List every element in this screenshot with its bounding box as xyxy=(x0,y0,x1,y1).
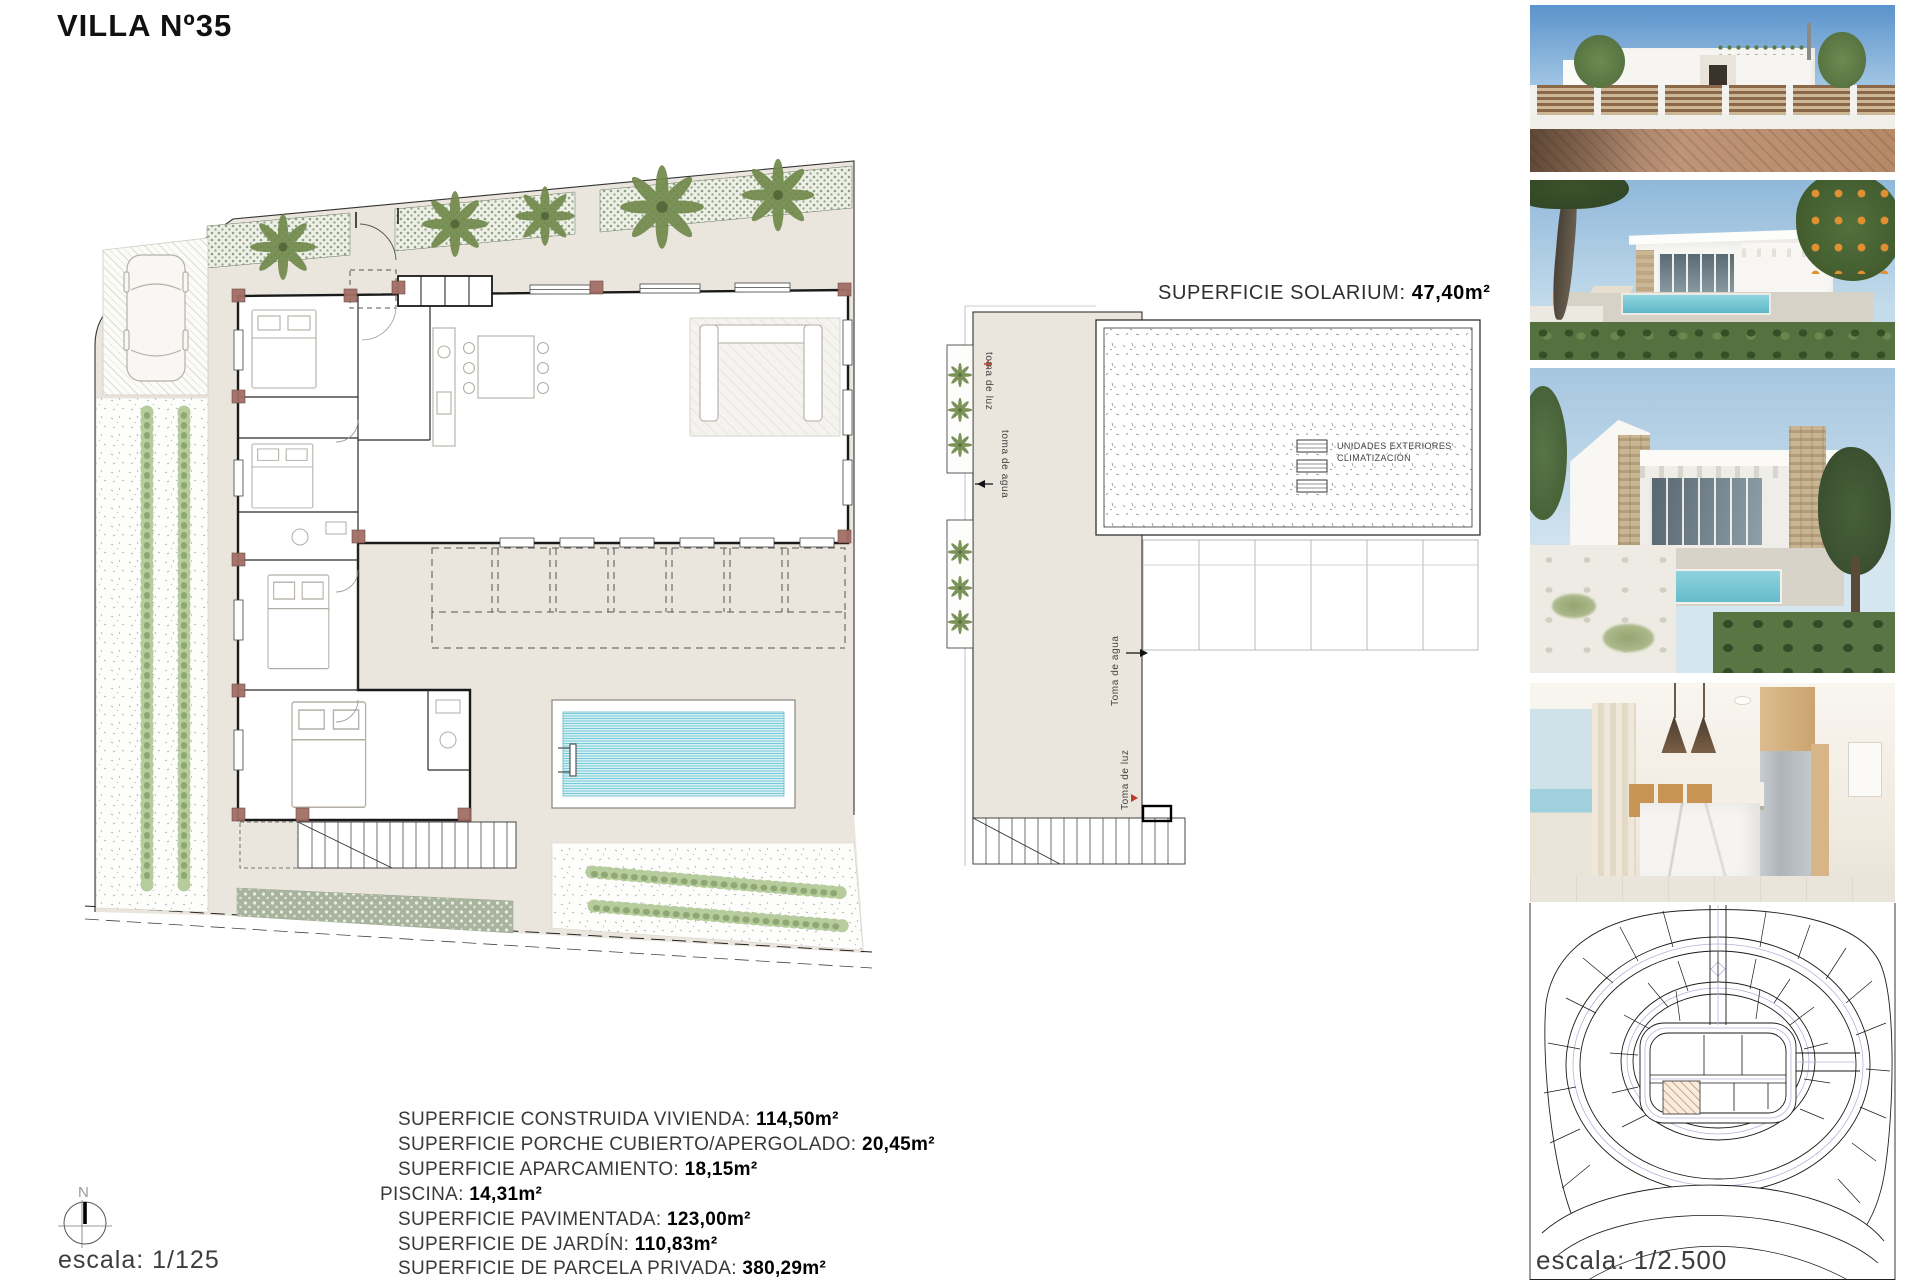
site-plan-scale: escala: 1/2.500 xyxy=(1536,1245,1727,1276)
ceiling-light xyxy=(1734,696,1751,705)
pool xyxy=(1621,293,1771,315)
area-value: 20,45m² xyxy=(862,1134,935,1155)
roof-plants xyxy=(1716,43,1804,55)
lower-floor-outline xyxy=(1143,540,1478,650)
render-kitchen-interior xyxy=(1530,683,1895,902)
render-villa-stone xyxy=(1530,368,1895,673)
wood-upper-cabinet xyxy=(1760,687,1815,751)
solarium-planters xyxy=(947,345,973,648)
area-label: SUPERFICIE CONSTRUIDA VIVIENDA: xyxy=(398,1109,750,1130)
areas-summary: SUPERFICIE CONSTRUIDA VIVIENDA: 114,50m²… xyxy=(380,1108,935,1280)
label-toma-de-luz-top: toma de luz xyxy=(983,352,994,410)
vegetable-bed xyxy=(1713,612,1896,673)
solarium-title-value: 47,40m² xyxy=(1412,282,1491,304)
pendant-cord-2 xyxy=(1703,683,1705,718)
compass-north-label: N xyxy=(78,1184,89,1201)
area-value: 18,15m² xyxy=(685,1159,758,1180)
left-garden xyxy=(96,398,208,912)
lamp-post xyxy=(1807,23,1811,60)
solarium-gravel xyxy=(1104,328,1472,527)
area-value: 380,29m² xyxy=(742,1258,826,1279)
solarium-title-label: SUPERFICIE SOLARIUM: xyxy=(1158,282,1406,304)
area-row: SUPERFICIE PAVIMENTADA: 123,00m² xyxy=(380,1208,935,1233)
site-plan xyxy=(1528,903,1898,1280)
area-value: 114,50m² xyxy=(756,1109,839,1130)
label-toma-de-agua-top: toma de agua xyxy=(999,430,1010,498)
ac-units xyxy=(1297,440,1327,492)
olive-trunk xyxy=(1851,557,1860,612)
glass-doors xyxy=(1650,478,1763,545)
render-exterior-street xyxy=(1530,5,1895,172)
highlighted-lot xyxy=(1663,1081,1700,1114)
solarium-title: SUPERFICIE SOLARIUM: 47,40m² xyxy=(1158,282,1490,305)
oranges xyxy=(1804,180,1895,274)
sun-lounger xyxy=(1590,286,1633,293)
wood-tall-cabinet xyxy=(1811,744,1829,875)
site-plan-drawing xyxy=(1528,903,1898,1280)
area-row: SUPERFICIE PORCHE CUBIERTO/APERGOLADO: 2… xyxy=(380,1133,935,1158)
label-toma-de-luz-bottom: Toma de luz xyxy=(1120,749,1131,810)
tree-left xyxy=(1574,35,1625,88)
floor xyxy=(1530,876,1895,902)
area-row: SUPERFICIE DE PARCELA PRIVADA: 380,29m² xyxy=(380,1257,935,1280)
tree-right xyxy=(1818,32,1865,89)
area-label: SUPERFICIE DE JARDÍN: xyxy=(398,1234,629,1255)
ac-units-label-line1: UNIDADES EXTERIORES xyxy=(1337,441,1452,451)
area-value: 14,31m² xyxy=(469,1184,542,1205)
pool xyxy=(1665,569,1782,604)
pendant-cord-1 xyxy=(1674,683,1676,718)
pool xyxy=(552,700,795,808)
area-label: SUPERFICIE PAVIMENTADA: xyxy=(398,1209,661,1230)
area-label: PISCINA: xyxy=(380,1184,464,1205)
area-row: PISCINA: 14,31m² xyxy=(380,1183,935,1208)
floor-plan-scale: escala: 1/125 xyxy=(58,1246,220,1275)
stone-pillar xyxy=(1636,250,1654,295)
plan-sheet: VILLA Nº35 xyxy=(0,0,1920,1280)
area-value: 110,83m² xyxy=(635,1234,718,1255)
area-value: 123,00m² xyxy=(667,1209,751,1230)
fridge xyxy=(1760,751,1811,876)
area-row: SUPERFICIE APARCAMIENTO: 18,15m² xyxy=(380,1158,935,1183)
render-pool-garden xyxy=(1530,180,1895,360)
wall-art-frame xyxy=(1848,742,1883,797)
ac-units-label-line2: CLIMATIZACIÓN xyxy=(1337,453,1411,463)
marble-island xyxy=(1640,803,1760,882)
driveway-shadow xyxy=(1530,129,1742,172)
grass-tuft-1 xyxy=(1552,594,1596,618)
area-label: SUPERFICIE APARCAMIENTO: xyxy=(398,1159,679,1180)
solarium-plan: UNIDADES EXTERIORES CLIMATIZACIÓN xyxy=(947,306,1480,866)
area-label: SUPERFICIE DE PARCELA PRIVADA: xyxy=(398,1258,737,1279)
label-toma-de-agua-side: Toma de agua xyxy=(1110,635,1121,706)
glass-doors xyxy=(1658,254,1735,294)
vegetable-bed xyxy=(1530,322,1895,360)
area-row: SUPERFICIE DE JARDÍN: 110,83m² xyxy=(380,1233,935,1258)
parking-area xyxy=(103,238,208,395)
area-row: SUPERFICIE CONSTRUIDA VIVIENDA: 114,50m² xyxy=(380,1108,935,1133)
kitchen-counter xyxy=(433,328,455,446)
area-label: SUPERFICIE PORCHE CUBIERTO/APERGOLADO: xyxy=(398,1134,856,1155)
grass-tuft-2 xyxy=(1603,624,1654,651)
car-icon xyxy=(124,255,188,381)
